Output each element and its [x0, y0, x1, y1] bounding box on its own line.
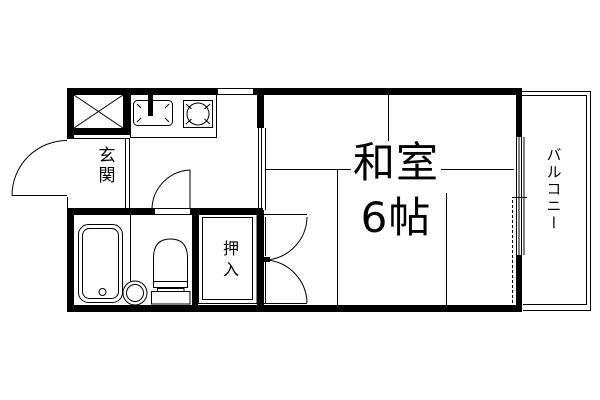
room-label-washitsu: 和室 6帖 — [351, 141, 441, 240]
kitchen-window-icon — [218, 89, 253, 95]
kitchen-sink-icon — [134, 95, 173, 126]
washitsu-size: 6帖 — [359, 196, 434, 240]
wall-bath-closet-divider — [192, 215, 198, 305]
entrance-door-icon — [12, 141, 67, 196]
balcony-sliding-window-icon — [512, 137, 527, 255]
closet-double-door-icon — [262, 215, 307, 304]
washitsu-name: 和室 — [351, 141, 441, 185]
walls — [67, 88, 522, 312]
wall-meterbox-right — [123, 88, 130, 135]
bathroom-door-icon — [152, 170, 190, 208]
floor-plan-drawing — [0, 0, 600, 400]
room-label-balcony: バルコニー — [544, 147, 565, 232]
stove-burner-icon — [184, 101, 213, 128]
floor-plan-canvas: 和室 6帖 玄関 押入 バルコニー — [0, 0, 600, 400]
room-label-oshiire: 押入 — [217, 240, 241, 282]
wall-top-right — [253, 88, 522, 95]
wall-partition-upper — [257, 95, 264, 128]
wall-right-lower — [516, 255, 522, 312]
wall-meterbox-bottom — [67, 128, 130, 135]
kitchen-counter — [131, 95, 217, 138]
wall-right-upper — [516, 88, 522, 137]
wall-bottom — [67, 305, 522, 312]
faucet-icon — [148, 95, 153, 116]
meter-box-icon — [74, 95, 123, 128]
toilet-icon — [152, 239, 191, 304]
bathtub-icon — [79, 225, 123, 303]
bathroom-doorway — [155, 209, 190, 215]
wash-basin-icon — [123, 281, 147, 305]
drain-icon — [99, 289, 106, 296]
wall-top-left — [67, 88, 218, 95]
sliding-door-icon — [259, 128, 266, 210]
wall-bath-top-left — [67, 208, 155, 215]
room-label-genkan: 玄関 — [93, 146, 118, 186]
wall-left-lower — [67, 215, 74, 312]
